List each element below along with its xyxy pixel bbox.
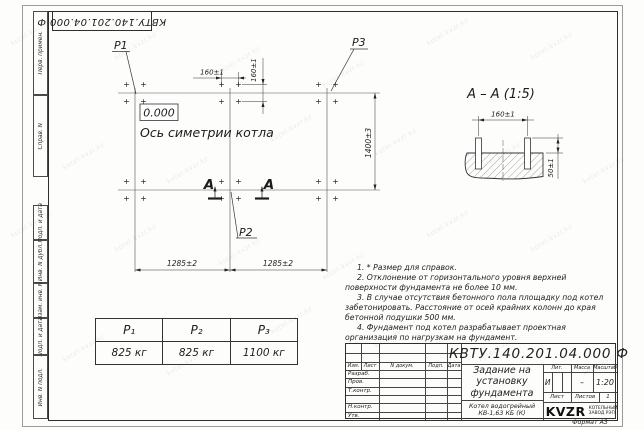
section-dim-160-lines bbox=[472, 116, 534, 136]
row-utv: Утв. bbox=[346, 412, 381, 420]
col-podp: Подп. bbox=[425, 362, 447, 370]
p3-label: P3 bbox=[352, 36, 366, 49]
anchor-bolt-marks bbox=[124, 82, 338, 201]
load-point-leaders bbox=[112, 49, 368, 238]
note-4: 4. Фундамент под котел разрабатывает про… bbox=[345, 323, 616, 343]
kvzr-logo-text: KVZR bbox=[546, 404, 586, 419]
section-title: А – А (1:5) bbox=[466, 87, 535, 102]
load-value-p2: 825 кг bbox=[163, 342, 230, 365]
row-tkontr: Т.контр. bbox=[346, 387, 381, 395]
title-line-1: Задание на bbox=[473, 365, 531, 377]
load-header-p2: P₂ bbox=[163, 319, 230, 342]
symmetry-axis-label: Ось симетрии котла bbox=[140, 125, 274, 140]
note-2: 2. Отклонение от горизонтального уровня … bbox=[345, 273, 616, 293]
load-value-p3: 1100 кг bbox=[231, 342, 297, 365]
p2-label: P2 bbox=[239, 226, 253, 239]
dim-160-horizontal: 160±1 bbox=[200, 69, 224, 77]
p1-label: P1 bbox=[114, 39, 128, 52]
sheets-value: 1 bbox=[599, 392, 617, 402]
sheets-label: Листов bbox=[571, 392, 599, 402]
loads-table-value-row: 825 кг 825 кг 1100 кг bbox=[96, 342, 297, 365]
cut-letter-left: А bbox=[203, 177, 214, 193]
dim-160-vertical: 160±1 bbox=[250, 58, 258, 82]
col-list: Лист bbox=[361, 362, 379, 370]
anchor-bolt-left bbox=[476, 138, 482, 169]
col-izm: Изм. bbox=[346, 362, 361, 370]
dim-1285-right: 1285±2 bbox=[263, 259, 293, 268]
col-n-dokum: N докум. bbox=[379, 362, 425, 370]
scale-value: 1:20 bbox=[593, 372, 617, 392]
scale-label: Масштаб bbox=[593, 364, 617, 372]
lit-value: И bbox=[543, 372, 552, 392]
title-line-3: фундамента bbox=[471, 388, 534, 400]
elevation-value: 0.000 bbox=[143, 107, 175, 120]
product-line-1: Котел водогрейный bbox=[469, 403, 535, 411]
lit-label: Лит. bbox=[543, 364, 571, 372]
mass-value: – bbox=[571, 372, 593, 392]
title-block: Изм. Лист N докум. Подп. Дата Разраб. Пр… bbox=[345, 343, 616, 419]
load-value-p1: 825 кг bbox=[96, 342, 163, 365]
section-dim-160: 160±1 bbox=[491, 111, 515, 119]
row-razrab: Разраб. bbox=[346, 370, 381, 378]
load-header-p3: P₃ bbox=[231, 319, 297, 342]
mass-label: Масса bbox=[571, 364, 593, 372]
loads-table-header-row: P₁ P₂ P₃ bbox=[96, 319, 297, 342]
company-line-2: ЗАВОД РЭП bbox=[589, 411, 615, 416]
section-dim-50: 50±1 bbox=[547, 158, 555, 177]
format-label: Формат А3 bbox=[545, 419, 635, 426]
dim-1400: 1400±3 bbox=[364, 128, 373, 158]
company-name: КОТЕЛЬНЫЙ ЗАВОД РЭП bbox=[589, 406, 618, 416]
note-3: 3. В случае отсутствия бетонного пола пл… bbox=[345, 293, 616, 323]
title-line-2: установку bbox=[476, 376, 527, 388]
company-logo-cell: KVZR КОТЕЛЬНЫЙ ЗАВОД РЭП bbox=[543, 402, 617, 420]
cut-letter-right: А bbox=[263, 177, 274, 193]
col-data: Дата bbox=[447, 362, 461, 370]
load-header-p1: P₁ bbox=[96, 319, 163, 342]
note-1: 1. * Размер для справок. bbox=[345, 263, 616, 273]
product-name: Котел водогрейный КВ-1,63 КБ (К) bbox=[461, 400, 543, 420]
product-line-2: КВ-1,63 КБ (К) bbox=[478, 410, 525, 418]
document-title: Задание на установку фундамента bbox=[461, 364, 543, 400]
drawing-sheet: kotel-kvzr.kzkotel-kvzr.kzkotel-kvzr.kzk… bbox=[0, 0, 644, 430]
anchor-bolt-right bbox=[525, 138, 531, 169]
sheet-label: Лист bbox=[543, 392, 571, 402]
row-prov: Пров. bbox=[346, 378, 381, 386]
dim-1285-left: 1285±2 bbox=[167, 259, 197, 268]
notes-block: 1. * Размер для справок. 2. Отклонение о… bbox=[345, 263, 616, 343]
loads-table: P₁ P₂ P₃ 825 кг 825 кг 1100 кг bbox=[95, 318, 298, 365]
row-nkontr: Н.контр. bbox=[346, 403, 381, 411]
title-block-doc-number: КВТУ.140.201.04.000 Ф bbox=[461, 344, 617, 364]
